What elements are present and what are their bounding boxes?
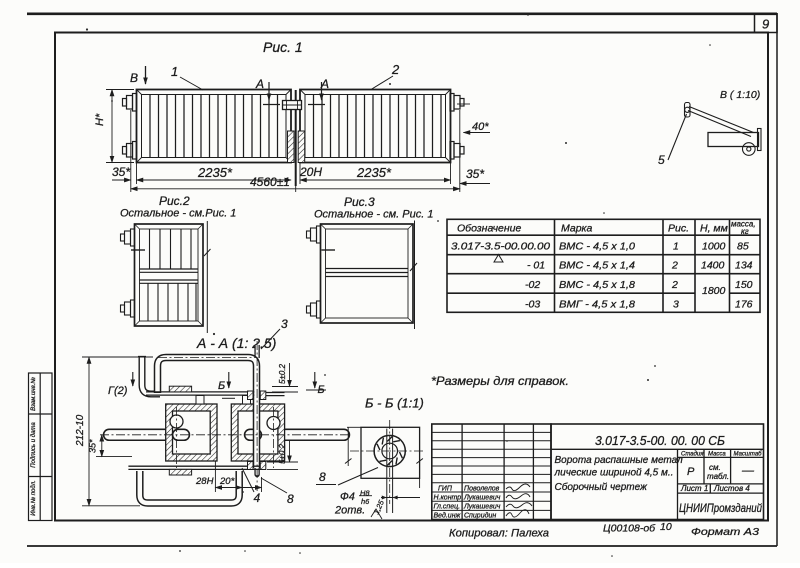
svg-text:5±0.2: 5±0.2 <box>278 443 287 464</box>
svg-text:2: 2 <box>671 260 678 272</box>
svg-text:Масштаб: Масштаб <box>734 452 763 458</box>
svg-text:Лукашевич: Лукашевич <box>463 495 501 502</box>
svg-text:кг: кг <box>741 227 749 236</box>
svg-text:Сборочный чертеж: Сборочный чертеж <box>555 481 649 493</box>
svg-text:ВМС - 4,5 х 1,8: ВМС - 4,5 х 1,8 <box>559 279 635 291</box>
svg-text:Рис.: Рис. <box>668 223 689 235</box>
svg-text:4: 4 <box>254 491 261 505</box>
svg-text:20*: 20* <box>219 476 235 487</box>
svg-text:Формат А3: Формат А3 <box>691 526 759 538</box>
svg-text:Ф4: Ф4 <box>340 491 355 503</box>
svg-text:А: А <box>255 77 264 91</box>
svg-text:85: 85 <box>737 241 749 253</box>
svg-text:3: 3 <box>281 317 288 331</box>
svg-text:2: 2 <box>391 62 400 77</box>
svg-text:Ворота распашные метал: Ворота распашные метал <box>555 455 684 466</box>
svg-text:8: 8 <box>287 492 294 506</box>
svg-text:Обозначение: Обозначение <box>457 223 521 235</box>
svg-text:Рис. 1: Рис. 1 <box>263 39 303 55</box>
svg-text:20Н: 20Н <box>299 165 322 179</box>
svg-text:Поволелов: Поволелов <box>464 486 500 493</box>
svg-text:10: 10 <box>660 521 672 533</box>
svg-text:1800: 1800 <box>702 285 726 297</box>
svg-text:Инв.№ подл.: Инв.№ подл. <box>30 480 37 516</box>
svg-text:В: В <box>130 71 138 85</box>
svg-text:2235*: 2235* <box>197 165 233 180</box>
svg-text:3.017-3.5-00.00.00: 3.017-3.5-00.00.00 <box>451 241 550 253</box>
svg-text:35*: 35* <box>466 167 484 181</box>
svg-text:40*: 40* <box>472 121 489 133</box>
svg-text:35*: 35* <box>88 439 98 453</box>
svg-text:табл.: табл. <box>707 472 729 481</box>
svg-text:1000: 1000 <box>702 241 726 253</box>
svg-text:2отв.: 2отв. <box>334 505 365 517</box>
svg-text:ЦНИИПромзданий: ЦНИИПромзданий <box>679 501 762 515</box>
svg-text:1: 1 <box>673 241 679 253</box>
svg-text:176: 176 <box>735 299 753 311</box>
svg-text:А - А (1: 2.5): А - А (1: 2.5) <box>196 335 276 351</box>
svg-text:Ц00108-об: Ц00108-об <box>603 523 656 535</box>
svg-text:134: 134 <box>735 260 753 272</box>
svg-text:Марка: Марка <box>561 223 593 235</box>
svg-text:28Н: 28Н <box>195 476 214 487</box>
svg-text:150: 150 <box>735 279 753 291</box>
svg-text:Б - Б (1:1): Б - Б (1:1) <box>365 396 424 411</box>
svg-text:Листов 4: Листов 4 <box>713 484 750 493</box>
svg-text:ВМС - 4,5 х 1,4: ВМС - 4,5 х 1,4 <box>559 260 635 272</box>
svg-text:*Размеры для справок.: *Размеры для справок. <box>431 376 569 388</box>
svg-text:—: — <box>741 463 755 477</box>
svg-text:Стадия: Стадия <box>681 452 704 458</box>
svg-text:Н, мм: Н, мм <box>700 223 728 235</box>
svg-text:-03: -03 <box>525 299 540 311</box>
svg-text:Б: Б <box>218 380 225 392</box>
svg-text:1: 1 <box>171 64 178 79</box>
svg-text:Масса: Масса <box>708 452 726 458</box>
svg-text:Остальное - см. Рис. 1: Остальное - см. Рис. 1 <box>314 209 433 221</box>
svg-text:2: 2 <box>671 279 678 291</box>
svg-text:-02: -02 <box>525 279 540 291</box>
svg-text:1400: 1400 <box>701 260 725 272</box>
svg-text:Взам.инв.№: Взам.инв.№ <box>30 377 37 411</box>
svg-text:Лист 1: Лист 1 <box>680 484 708 493</box>
svg-text:- 01: - 01 <box>527 260 545 272</box>
svg-text:35*: 35* <box>112 165 130 179</box>
svg-text:Рис.3: Рис.3 <box>344 195 375 209</box>
svg-text:Рис.2: Рис.2 <box>159 194 190 208</box>
svg-text:Копировал: Палеха: Копировал: Палеха <box>449 528 549 540</box>
svg-text:Вед.инж: Вед.инж <box>434 512 462 520</box>
svg-text:Остальное - см.Рис. 1: Остальное - см.Рис. 1 <box>120 208 236 220</box>
svg-text:Н*: Н* <box>94 113 106 126</box>
svg-text:Лукашевич: Лукашевич <box>463 504 501 511</box>
svg-text:2235*: 2235* <box>356 165 392 180</box>
svg-text:лические шириной 4,5 м..: лические шириной 4,5 м.. <box>554 468 674 479</box>
svg-text:Гл.спец.: Гл.спец. <box>434 504 461 511</box>
svg-text:5: 5 <box>658 153 665 167</box>
svg-text:3: 3 <box>673 299 679 311</box>
svg-text:ВМГ - 4,5 х 1,8: ВМГ - 4,5 х 1,8 <box>559 299 635 311</box>
svg-text:Г(2): Г(2) <box>108 385 128 397</box>
svg-text:212-10: 212-10 <box>75 414 86 447</box>
svg-text:ВМС - 4,5 х 1,0: ВМС - 4,5 х 1,0 <box>559 241 635 253</box>
svg-text:3.017-3.5-00. 00. 00 СБ: 3.017-3.5-00. 00. 00 СБ <box>595 433 725 448</box>
svg-text:Н.контр: Н.контр <box>434 495 462 502</box>
svg-text:ГИП: ГИП <box>438 486 453 493</box>
svg-text:9: 9 <box>762 17 769 32</box>
svg-text:см.: см. <box>709 463 721 472</box>
svg-text:В ( 1:10): В ( 1:10) <box>720 89 760 101</box>
svg-text:Подпись и дата: Подпись и дата <box>31 422 37 468</box>
svg-text:4560±1: 4560±1 <box>250 175 290 189</box>
svg-text:Р: Р <box>687 466 695 478</box>
svg-text:8: 8 <box>319 470 326 484</box>
svg-text:5±0.2: 5±0.2 <box>278 363 287 384</box>
svg-text:Спиридин: Спиридин <box>464 512 496 520</box>
